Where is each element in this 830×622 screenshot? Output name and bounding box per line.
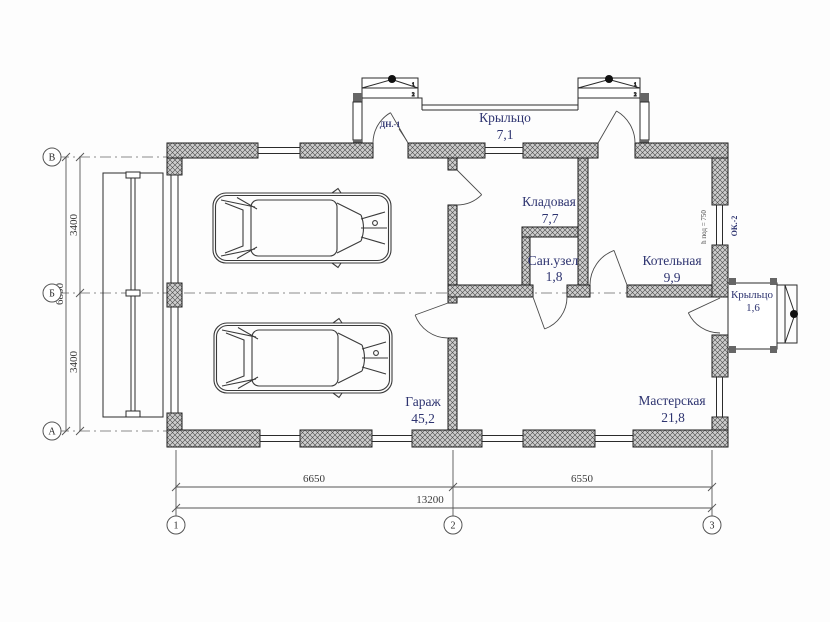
floor-plan-page: 1 2 1 2 — [0, 0, 830, 622]
window — [258, 143, 300, 158]
wall-segment — [712, 158, 728, 205]
wall-segment — [167, 283, 182, 307]
axis-label-2: 2 — [451, 521, 456, 532]
wall-segment — [448, 297, 457, 303]
wall-segment — [448, 285, 533, 297]
room-area-bathroom: 1,8 — [546, 269, 563, 284]
room-label-porch-top: Крыльцо — [479, 110, 531, 125]
room-label-garage: Гараж — [405, 394, 441, 409]
axis-markers — [43, 148, 721, 534]
step-marker-dot — [605, 75, 613, 83]
wall-segment — [712, 335, 728, 377]
wall-segment — [412, 430, 482, 447]
porch-steps-right — [578, 75, 640, 98]
room-label-bathroom: Сан.узел — [528, 253, 579, 268]
room-area-storage: 7,7 — [542, 211, 559, 226]
wall-segment — [567, 285, 590, 297]
gate-opening — [167, 307, 182, 413]
wall-segment — [635, 143, 728, 158]
step-marker-dot — [790, 310, 798, 318]
door-swing — [688, 298, 720, 333]
door-swing — [457, 170, 482, 205]
porch-column-base — [640, 93, 649, 102]
wall-segment — [408, 143, 485, 158]
door-swing — [598, 111, 635, 143]
car-icon — [213, 189, 391, 268]
door-swing — [590, 250, 627, 285]
window-ok2 — [712, 205, 728, 245]
wall-segment — [448, 338, 457, 430]
porch-column-base — [353, 93, 362, 102]
porch-column-base — [729, 278, 736, 285]
room-label-storage: Кладовая — [522, 194, 576, 209]
wall-segment — [167, 413, 182, 430]
porch-column — [353, 102, 362, 140]
porch-edge — [418, 98, 578, 110]
axis-label-a: А — [48, 427, 56, 438]
room-area-porch-side: 1,6 — [746, 302, 760, 314]
wall-segment — [167, 430, 260, 447]
door-swing — [533, 297, 567, 329]
window — [712, 377, 728, 417]
wall-segment — [522, 227, 578, 237]
door-tag-leader — [399, 129, 407, 141]
wall-segment — [627, 285, 712, 297]
door-swing — [415, 303, 448, 338]
wall-segment — [578, 158, 588, 285]
room-label-porch-side: Крыльцо — [731, 289, 774, 301]
dim-left-span-2: 3400 — [68, 351, 80, 374]
window-tag-ok2: ОК.-2 — [730, 216, 739, 237]
wall-segment — [712, 245, 728, 297]
wall-segment — [448, 158, 457, 170]
room-area-garage: 45,2 — [411, 411, 435, 426]
room-label-boiler: Котельная — [642, 253, 701, 268]
window — [372, 430, 412, 447]
dim-left-span-1: 3400 — [68, 214, 80, 237]
dim-bottom-span-1: 6650 — [303, 473, 326, 485]
window — [482, 430, 523, 447]
car-icon — [214, 319, 392, 398]
wall-segment — [167, 158, 182, 175]
wall-segment — [712, 417, 728, 430]
porch-steps-side — [777, 285, 798, 343]
window — [260, 430, 300, 447]
floor-plan-drawing: 1 2 1 2 — [0, 0, 830, 622]
axis-label-b: Б — [49, 289, 55, 300]
window-sill-note: h под = 750 — [700, 210, 708, 244]
dim-bottom-total: 13200 — [416, 494, 444, 506]
wall-segment — [523, 430, 595, 447]
garage-gates — [103, 172, 163, 417]
porch-column-base — [729, 346, 736, 353]
door-tag-dn1: ДН.-1 — [380, 120, 400, 129]
room-label-workshop: Мастерская — [638, 393, 705, 408]
room-area-workshop: 21,8 — [661, 410, 685, 425]
window — [485, 143, 523, 158]
wall-segment — [300, 430, 372, 447]
wall-segment — [167, 143, 258, 158]
axis-label-v: В — [49, 153, 56, 164]
porch-column-base — [770, 346, 777, 353]
porch-steps-left — [362, 75, 418, 98]
room-area-boiler: 9,9 — [664, 270, 681, 285]
room-area-porch-top: 7,1 — [497, 127, 514, 142]
axis-label-1: 1 — [174, 521, 179, 532]
wall-segment — [523, 143, 598, 158]
axis-label-3: 3 — [710, 521, 715, 532]
step-marker-dot — [388, 75, 396, 83]
wall-segment — [300, 143, 373, 158]
porch-column — [640, 102, 649, 140]
wall-segment — [633, 430, 728, 447]
dim-bottom-span-2: 6550 — [571, 473, 594, 485]
wall-segment — [448, 205, 457, 285]
gate-opening — [167, 175, 182, 283]
window — [595, 430, 633, 447]
porch-column-base — [770, 278, 777, 285]
